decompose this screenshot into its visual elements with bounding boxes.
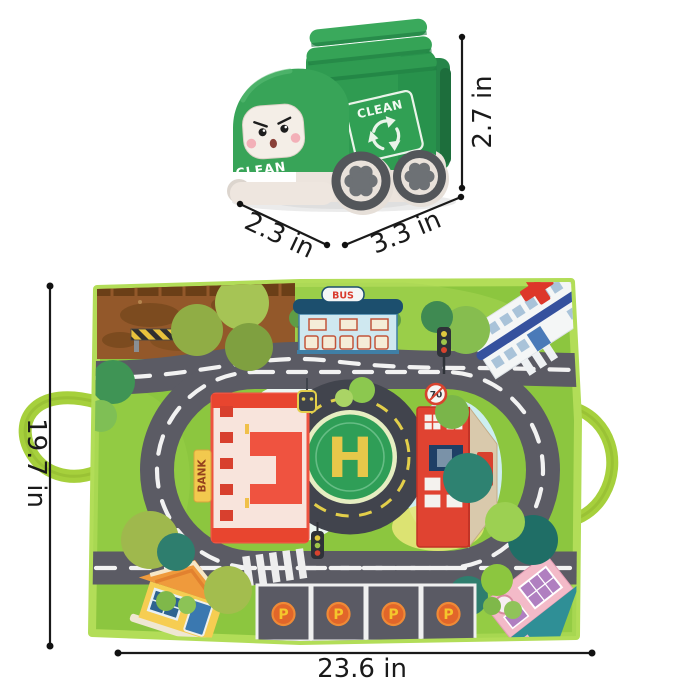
speed-limit-sign: 70	[426, 384, 446, 404]
mat-width-label: 23.6 in	[317, 654, 407, 681]
parking-lot: P P P P	[257, 585, 475, 641]
svg-text:P: P	[278, 607, 288, 623]
svg-text:P: P	[333, 607, 343, 623]
toy-truck: CLEAN	[227, 17, 456, 215]
helipad-letter: H	[327, 426, 373, 490]
truck-width-label: 2.3 in	[240, 207, 319, 265]
bank-sign: BANK	[197, 459, 209, 493]
truck-height-label: 2.7 in	[468, 75, 498, 148]
truck-face	[241, 103, 306, 160]
play-mat: H BUS	[25, 255, 612, 667]
bank-building: BANK	[194, 394, 308, 542]
mat-height-label: 19.7 in	[21, 418, 51, 508]
product-image: CLEAN	[0, 0, 679, 681]
bus-sign: BUS	[332, 291, 354, 302]
truck-length-label: 3.3 in	[366, 205, 445, 261]
svg-text:P: P	[443, 607, 453, 623]
svg-text:P: P	[388, 607, 398, 623]
